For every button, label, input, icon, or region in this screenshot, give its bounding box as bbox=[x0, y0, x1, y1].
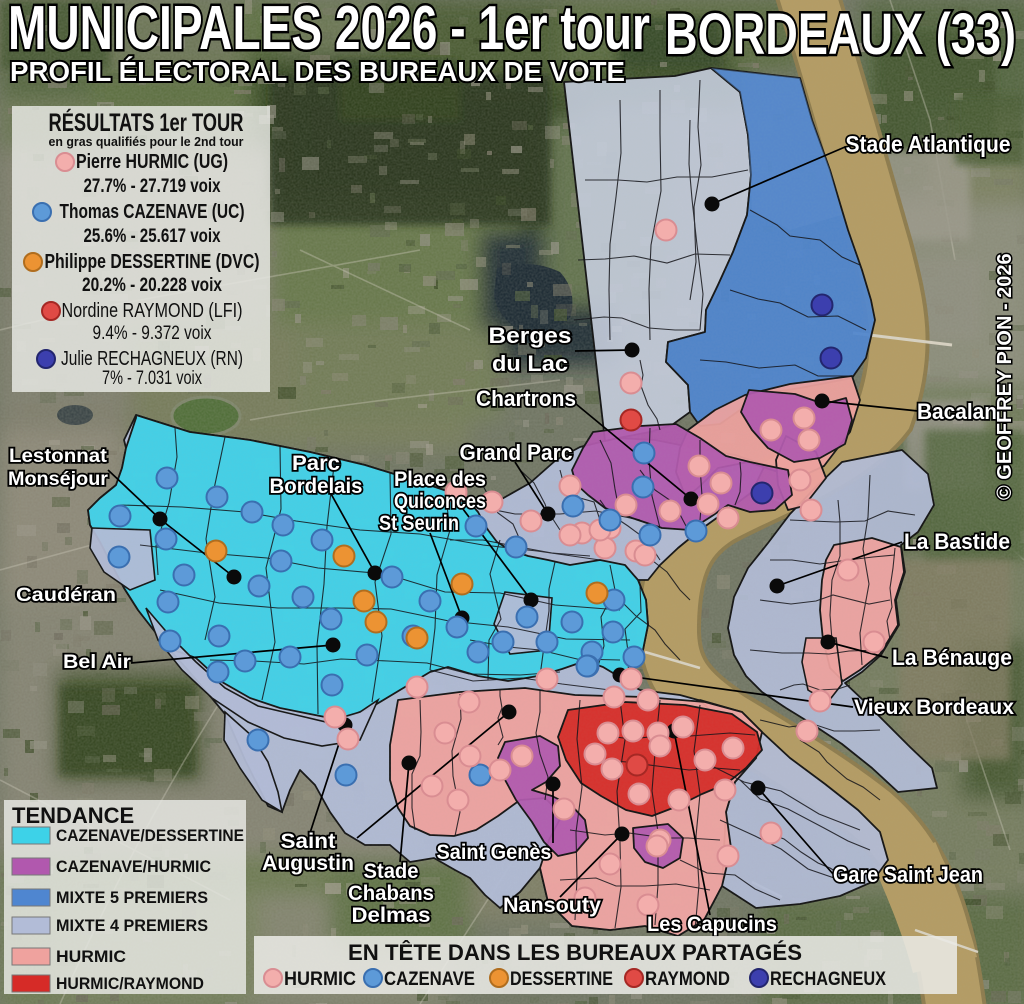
svg-text:25.6% - 25.617 voix: 25.6% - 25.617 voix bbox=[84, 226, 221, 247]
svg-text:Chartrons: Chartrons bbox=[476, 386, 576, 411]
svg-text:du Lac: du Lac bbox=[492, 351, 568, 376]
svg-text:Monséjour: Monséjour bbox=[8, 469, 109, 490]
svg-text:CAZENAVE: CAZENAVE bbox=[384, 969, 475, 990]
svg-text:9.4% - 9.372 voix: 9.4% - 9.372 voix bbox=[93, 323, 212, 344]
svg-text:Bel Air: Bel Air bbox=[63, 652, 132, 673]
svg-text:27.7% - 27.719 voix: 27.7% - 27.719 voix bbox=[84, 176, 221, 197]
svg-text:Pierre HURMIC (UG): Pierre HURMIC (UG) bbox=[76, 151, 228, 173]
svg-text:RÉSULTATS 1er TOUR: RÉSULTATS 1er TOUR bbox=[49, 108, 244, 137]
svg-text:HURMIC: HURMIC bbox=[56, 947, 126, 966]
svg-text:RECHAGNEUX: RECHAGNEUX bbox=[770, 969, 886, 990]
svg-text:Bacalan: Bacalan bbox=[917, 399, 997, 424]
svg-text:Les Capucins: Les Capucins bbox=[647, 913, 777, 936]
svg-text:Nordine RAYMOND (LFI): Nordine RAYMOND (LFI) bbox=[62, 300, 243, 322]
svg-text:© GEOFFREY PION - 2026: © GEOFFREY PION - 2026 bbox=[994, 253, 1016, 500]
svg-text:20.2% - 20.228 voix: 20.2% - 20.228 voix bbox=[82, 275, 222, 296]
svg-text:Berges: Berges bbox=[489, 323, 572, 348]
svg-text:BORDEAUX (33): BORDEAUX (33) bbox=[665, 2, 1016, 67]
svg-text:7% - 7.031 voix: 7% - 7.031 voix bbox=[102, 368, 202, 389]
svg-text:Place des: Place des bbox=[394, 468, 486, 491]
svg-text:Saint: Saint bbox=[281, 830, 336, 853]
svg-text:Thomas CAZENAVE (UC): Thomas CAZENAVE (UC) bbox=[60, 201, 245, 223]
svg-text:MUNICIPALES 2026 - 1er tour: MUNICIPALES 2026 - 1er tour bbox=[8, 0, 650, 63]
svg-text:Saint Genès: Saint Genès bbox=[437, 841, 552, 864]
svg-text:DESSERTINE: DESSERTINE bbox=[510, 969, 613, 990]
svg-text:Bordelais: Bordelais bbox=[270, 475, 363, 498]
svg-text:Vieux Bordeaux: Vieux Bordeaux bbox=[854, 696, 1014, 719]
svg-text:La Bénauge: La Bénauge bbox=[892, 645, 1012, 670]
svg-text:Julie RECHAGNEUX (RN): Julie RECHAGNEUX (RN) bbox=[61, 348, 243, 370]
svg-text:La Bastide: La Bastide bbox=[904, 529, 1010, 554]
svg-text:St Seurin: St Seurin bbox=[379, 512, 459, 535]
svg-text:Gare Saint Jean: Gare Saint Jean bbox=[833, 862, 983, 887]
svg-text:Caudéran: Caudéran bbox=[16, 585, 116, 606]
svg-text:Delmas: Delmas bbox=[352, 904, 431, 927]
svg-text:TENDANCE: TENDANCE bbox=[12, 803, 134, 828]
svg-text:HURMIC/RAYMOND: HURMIC/RAYMOND bbox=[56, 974, 204, 993]
svg-text:CAZENAVE/DESSERTINE: CAZENAVE/DESSERTINE bbox=[56, 826, 244, 845]
svg-text:Nansouty: Nansouty bbox=[503, 894, 601, 917]
svg-text:Lestonnat: Lestonnat bbox=[9, 446, 108, 467]
svg-text:CAZENAVE/HURMIC: CAZENAVE/HURMIC bbox=[56, 857, 211, 876]
svg-text:Augustin: Augustin bbox=[262, 852, 354, 875]
svg-text:Stade Atlantique: Stade Atlantique bbox=[846, 131, 1011, 157]
svg-text:PROFIL ÉLECTORAL DES BUREAUX D: PROFIL ÉLECTORAL DES BUREAUX DE VOTE bbox=[10, 56, 625, 87]
svg-text:Parc: Parc bbox=[292, 452, 340, 475]
svg-text:Philippe DESSERTINE (DVC): Philippe DESSERTINE (DVC) bbox=[45, 251, 260, 273]
svg-text:HURMIC: HURMIC bbox=[284, 969, 356, 990]
svg-text:en gras qualifiés pour le 2nd: en gras qualifiés pour le 2nd tour bbox=[49, 135, 244, 149]
svg-text:MIXTE 4 PREMIERS: MIXTE 4 PREMIERS bbox=[56, 916, 208, 935]
svg-text:EN TÊTE DANS LES BUREAUX PARTA: EN TÊTE DANS LES BUREAUX PARTAGÉS bbox=[348, 940, 802, 965]
svg-text:MIXTE 5 PREMIERS: MIXTE 5 PREMIERS bbox=[56, 888, 208, 907]
svg-text:Chabans: Chabans bbox=[348, 882, 434, 905]
svg-text:Stade: Stade bbox=[364, 860, 419, 883]
svg-text:Grand Parc: Grand Parc bbox=[460, 440, 573, 465]
svg-text:Quiconces: Quiconces bbox=[394, 490, 486, 513]
svg-text:RAYMOND: RAYMOND bbox=[645, 969, 730, 990]
